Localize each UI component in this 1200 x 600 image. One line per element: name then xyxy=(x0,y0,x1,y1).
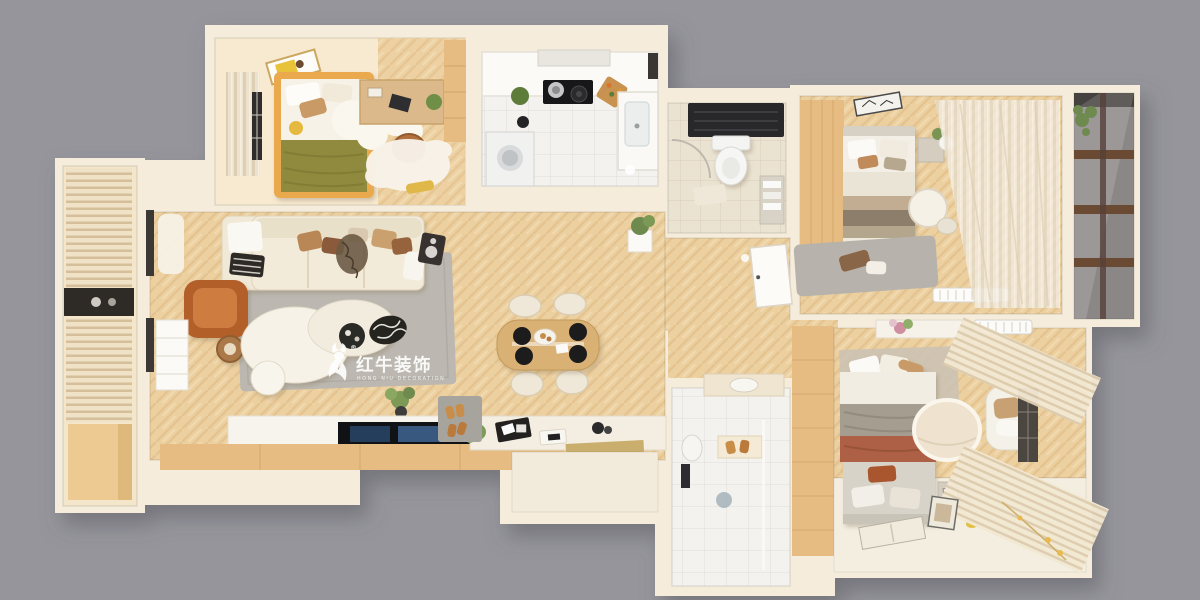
ceiling-unit xyxy=(688,103,784,137)
master-bed xyxy=(843,126,915,248)
blinds xyxy=(66,318,132,422)
vanity xyxy=(704,374,784,396)
washing-machine xyxy=(486,132,534,186)
balcony-console xyxy=(64,288,134,316)
kids-bedroom xyxy=(215,38,466,205)
entry-mat xyxy=(438,396,482,442)
veggie-basket xyxy=(511,87,529,105)
window xyxy=(146,210,154,276)
bathroom-2 xyxy=(672,374,790,586)
wall-art xyxy=(718,436,762,458)
chair xyxy=(937,218,957,234)
range-hood xyxy=(538,50,610,66)
sink-counter xyxy=(618,92,658,170)
ceiling-light xyxy=(741,254,749,262)
leaning-frame xyxy=(928,496,958,529)
registered-mark: ® xyxy=(350,344,357,352)
open-door xyxy=(750,244,792,307)
dining-table xyxy=(497,320,599,370)
floor-plan-canvas: ® 红牛装饰 HONG NIU DECORATION xyxy=(0,0,1200,600)
kids-wardrobe xyxy=(444,40,466,142)
watermark-subtitle: HONG NIU DECORATION xyxy=(357,376,445,382)
tall-cabinet xyxy=(648,53,658,79)
wardrobe-column xyxy=(792,326,834,556)
curtain xyxy=(158,214,184,274)
kettle xyxy=(517,116,529,128)
bath-shelf xyxy=(760,176,784,224)
watermark-title: 红牛装饰 xyxy=(356,355,432,376)
entry-floor xyxy=(512,452,658,512)
speaker xyxy=(417,232,446,266)
fixture xyxy=(681,464,690,488)
sofa xyxy=(222,216,426,290)
cooktop xyxy=(543,80,593,104)
side-chest xyxy=(156,320,188,390)
dresser xyxy=(876,319,962,338)
master-rug xyxy=(793,235,938,297)
bathroom-1 xyxy=(668,103,786,233)
sink xyxy=(682,435,702,461)
balcony xyxy=(63,166,137,506)
shower-glass xyxy=(762,420,765,570)
window xyxy=(146,318,154,372)
master-bedroom xyxy=(793,92,1062,314)
bedroom-2 xyxy=(834,317,1109,573)
drain xyxy=(716,492,732,508)
ceiling-light xyxy=(625,165,635,175)
blinds xyxy=(66,168,132,290)
desk xyxy=(360,80,444,124)
window-bay xyxy=(1073,93,1134,319)
